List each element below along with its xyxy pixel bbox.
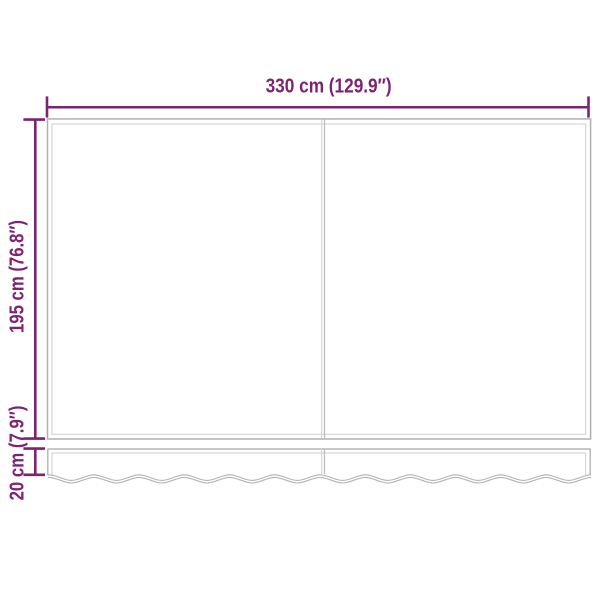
svg-text:330 cm (129.9″): 330 cm (129.9″)	[266, 74, 392, 96]
svg-text:20 cm (7.9″): 20 cm (7.9″)	[5, 406, 28, 501]
svg-text:195 cm (76.8″): 195 cm (76.8″)	[5, 220, 28, 333]
